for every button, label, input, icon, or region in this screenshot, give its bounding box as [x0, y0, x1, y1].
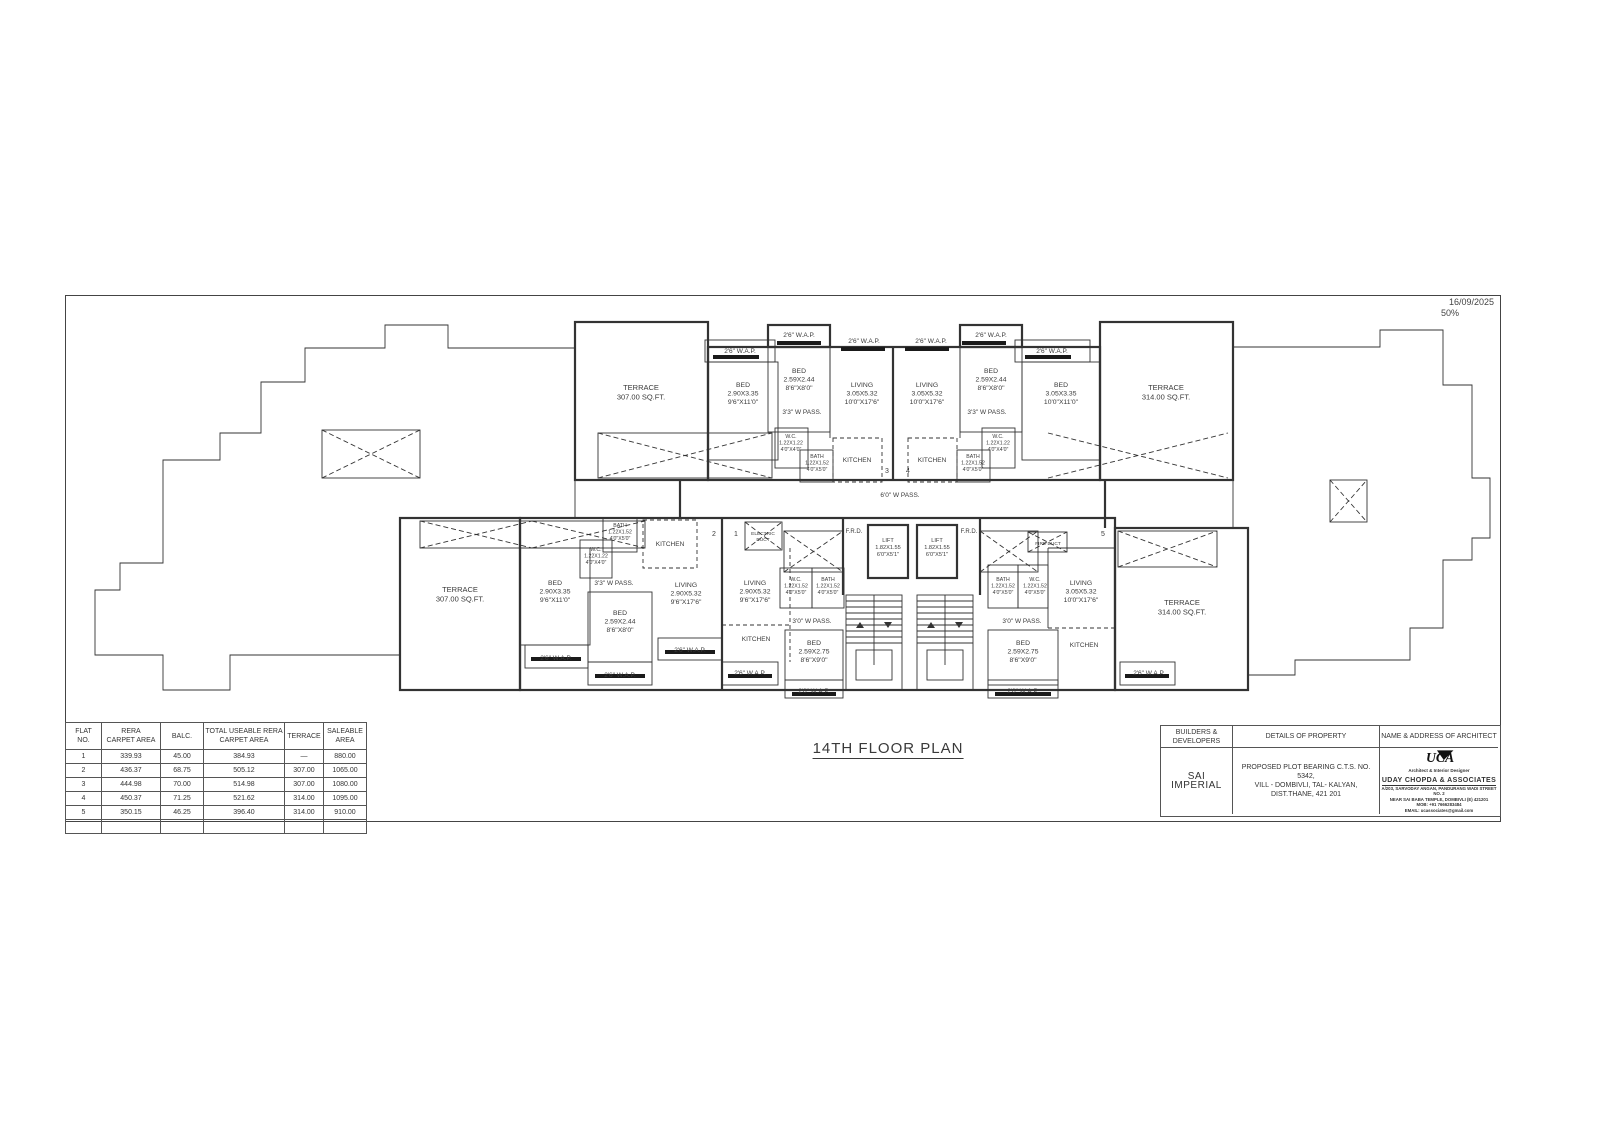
area-table-header: FLAT NO.	[66, 723, 102, 750]
room-label: KITCHEN	[843, 457, 872, 464]
area-table-row: 1339.9345.00384.93—880.00	[66, 750, 367, 764]
room-label: 2'6" W.A.P.	[1007, 688, 1039, 695]
flat-number-marker: 4	[906, 468, 910, 475]
room-label: 2'6" W.A.P.	[1133, 670, 1165, 677]
area-table-header: TOTAL USEABLE RERA CARPET AREA	[204, 723, 285, 750]
room-label: W.C.1.22X1.524'0"X5'0"	[784, 577, 808, 596]
architect-name: UDAY CHOPDA & ASSOCIATES	[1382, 776, 1496, 786]
duct-void-frames	[322, 430, 1367, 572]
room-label: KITCHEN	[918, 457, 947, 464]
room-label: 3'3" W PASS.	[967, 409, 1006, 416]
area-table-header: BALC.	[161, 723, 204, 750]
room-label: 6'0" W PASS.	[880, 492, 919, 499]
plan-labels: TERRACE307.00 SQ.FT.2'6" W.A.P.BED2.90X3…	[436, 332, 1206, 695]
flat-number-marker: 2	[712, 531, 716, 538]
room-label: BATH1.22X1.524'0"X5'0"	[816, 577, 840, 596]
architect-tagline: Architect & Interior Designer	[1408, 766, 1469, 775]
area-table-header: SALEABLE AREA	[324, 723, 367, 750]
room-label: LIVING3.05X5.3210'0"X17'6"	[910, 382, 945, 406]
architect-details: UCA Architect & Interior Designer UDAY C…	[1380, 748, 1498, 814]
room-label: 2'6" W.A.P.	[734, 670, 766, 677]
area-table-row: 5350.1546.25396.40314.00910.00	[66, 806, 367, 820]
room-label: 2'6" W.A.P.	[674, 647, 706, 654]
floor-plan-drawing: TERRACE307.00 SQ.FT.2'6" W.A.P.BED2.90X3…	[65, 295, 1499, 715]
room-label: LIVING2.90X5.329'6"X17'6"	[740, 580, 772, 604]
property-header: DETAILS OF PROPERTY	[1233, 726, 1380, 748]
architect-header: NAME & ADDRESS OF ARCHITECT	[1380, 726, 1498, 748]
upper-wing-partitions	[705, 340, 1100, 482]
room-label: BATH1.22X1.524'0"X5'0"	[608, 523, 632, 542]
room-label: 3'0" W PASS.	[792, 618, 831, 625]
room-label: 2'6" W.A.P.	[724, 348, 756, 355]
room-label: LIFT1.82X1.556'0"X5'1"	[875, 538, 901, 558]
uca-logo-icon: UCA	[1416, 749, 1462, 766]
room-label: 2'6" W.A.P.	[540, 655, 572, 662]
room-label: 2'6" W.A.P.	[1036, 348, 1068, 355]
room-label: FIRE DUCT	[1035, 541, 1061, 547]
room-label: 3'0" W PASS.	[1002, 618, 1041, 625]
room-label: F.R.D.	[846, 529, 863, 535]
area-table-header: RERA CARPET AREA	[102, 723, 161, 750]
room-label: BED3.05X3.3510'0"X11'0"	[1044, 382, 1079, 406]
property-details: PROPOSED PLOT BEARING C.T.S. NO. 5342, V…	[1233, 748, 1380, 814]
room-label: BED2.59X2.448'6"X8'0"	[976, 368, 1007, 392]
room-label: LIFT1.82X1.556'0"X5'1"	[924, 538, 950, 558]
architect-address1: A/203, SARVODAY ANGAN, PANDURANG WADI ST…	[1381, 786, 1497, 797]
room-label: 3'3" W PASS.	[594, 580, 633, 587]
flat-number-marker: 5	[1101, 531, 1105, 538]
room-label: KITCHEN	[742, 636, 771, 643]
duct-void-crosses	[322, 430, 1367, 572]
area-table-row: 3444.9870.00514.98307.001080.00	[66, 778, 367, 792]
title-block: BUILDERS & DEVELOPERS DETAILS OF PROPERT…	[1160, 725, 1501, 817]
area-table-row: 2436.3768.75505.12307.001065.00	[66, 764, 367, 778]
room-label: BED2.59X2.758'6"X9'0"	[799, 640, 830, 664]
area-table-header: TERRACE	[285, 723, 324, 750]
room-label: 2'6" W.A.P.	[783, 332, 815, 339]
room-label: BED2.59X2.448'6"X8'0"	[784, 368, 815, 392]
room-label: TERRACE307.00 SQ.FT.	[436, 585, 484, 603]
area-table-empty-row	[66, 820, 367, 834]
room-label: 2'6" W.A.P.	[798, 688, 830, 695]
room-label: W.C.1.22X1.224'0"X4'0"	[584, 547, 608, 566]
room-label: BED2.90X3.359'6"X11'0"	[728, 382, 759, 406]
room-label: LIVING2.90X5.329'6"X17'6"	[671, 582, 703, 606]
room-label: BATH1.22X1.524'0"X5'0"	[961, 454, 985, 473]
room-label: BATH1.22X1.524'0"X5'0"	[805, 454, 829, 473]
svg-text:UCA: UCA	[1426, 750, 1454, 765]
room-label: TERRACE307.00 SQ.FT.	[617, 383, 665, 401]
room-label: W.C.1.22X1.524'0"X5'0"	[1023, 577, 1047, 596]
room-label: BED2.90X3.359'6"X11'0"	[540, 580, 571, 604]
room-label: W.C.1.22X1.224'0"X4'0"	[986, 434, 1010, 453]
room-label: TERRACE314.00 SQ.FT.	[1158, 598, 1206, 616]
room-label: W.C.1.22X1.224'0"X4'0"	[779, 434, 803, 453]
drawing-title: 14TH FLOOR PLAN	[813, 740, 964, 759]
room-label: LIVING3.05X5.3210'0"X17'6"	[845, 382, 880, 406]
room-label: 3'3" W PASS.	[782, 409, 821, 416]
room-label: BATH1.22X1.524'0"X5'0"	[991, 577, 1015, 596]
staircase	[846, 595, 973, 690]
room-label: 2'6" W.A.P.	[915, 338, 947, 345]
room-label: KITCHEN	[656, 541, 685, 548]
drawing-sheet: { "sheet": { "date": "16/09/2025", "scal…	[0, 0, 1600, 1131]
builders-header: BUILDERS & DEVELOPERS	[1161, 726, 1233, 748]
room-label: 2'6" W.A.P.	[604, 672, 636, 679]
corridor-walls	[680, 480, 1105, 528]
room-label: ELECTRICDUCT	[751, 531, 775, 543]
architect-email: EMAIL: ucassociates@gmail.com	[1405, 808, 1473, 814]
room-label: LIVING3.05X5.3210'0"X17'6"	[1064, 580, 1099, 604]
room-label: TERRACE314.00 SQ.FT.	[1142, 383, 1190, 401]
builder-name: SAI IMPERIAL	[1161, 748, 1233, 814]
flat-number-marker: 1	[734, 531, 738, 538]
room-label: 2'6" W.A.P.	[848, 338, 880, 345]
room-label: KITCHEN	[1070, 642, 1099, 649]
lower-wing-partitions	[520, 518, 1175, 698]
room-label: BED2.59X2.448'6"X8'0"	[605, 610, 636, 634]
room-label: BED2.59X2.758'6"X9'0"	[1008, 640, 1039, 664]
room-label: 2'6" W.A.P.	[975, 332, 1007, 339]
flat-number-marker: 3	[885, 468, 889, 475]
area-statement-table: FLAT NO.RERA CARPET AREABALC.TOTAL USEAB…	[65, 722, 367, 834]
area-table-row: 4450.3771.25521.62314.001095.00	[66, 792, 367, 806]
room-label: F.R.D.	[961, 529, 978, 535]
